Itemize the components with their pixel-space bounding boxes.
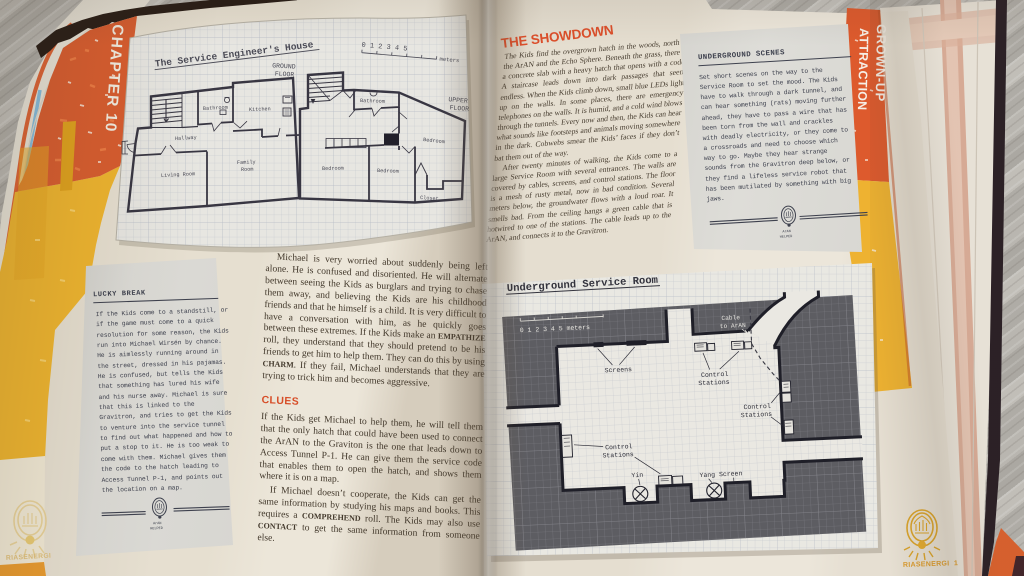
svg-text:HELPED: HELPED [150,527,163,531]
svg-text:Yin: Yin [631,472,643,480]
svg-text:GROWN-UP: GROWN-UP [873,24,889,102]
svg-text:Hallway: Hallway [175,135,197,142]
svg-text:Screens: Screens [605,366,633,374]
svg-text:GROUND: GROUND [272,62,296,70]
svg-text:Kitchen: Kitchen [249,106,271,113]
svg-text:Family: Family [237,159,256,166]
svg-text:RIASENERGI: RIASENERGI [6,553,52,562]
svg-text:Room: Room [241,167,254,173]
svg-text:Control: Control [701,371,729,379]
svg-text:ArAN: ArAN [782,229,791,234]
svg-text:Bedroom: Bedroom [377,168,399,175]
svg-text:Stations: Stations [602,451,634,459]
svg-text:HELPED: HELPED [780,235,793,240]
svg-text:Control: Control [605,443,633,451]
svg-text:to ArAN: to ArAN [720,322,747,330]
svg-text:Control: Control [743,403,771,411]
svg-text:Stations: Stations [698,379,730,387]
svg-text:Cable: Cable [721,314,740,322]
svg-text:RIASENERGI 1: RIASENERGI 1 [903,560,958,569]
svg-text:Bathroom: Bathroom [360,98,385,105]
svg-text:Bedroom: Bedroom [322,166,344,172]
svg-text:Stations: Stations [741,411,773,419]
svg-text:ArAN: ArAN [153,521,162,526]
